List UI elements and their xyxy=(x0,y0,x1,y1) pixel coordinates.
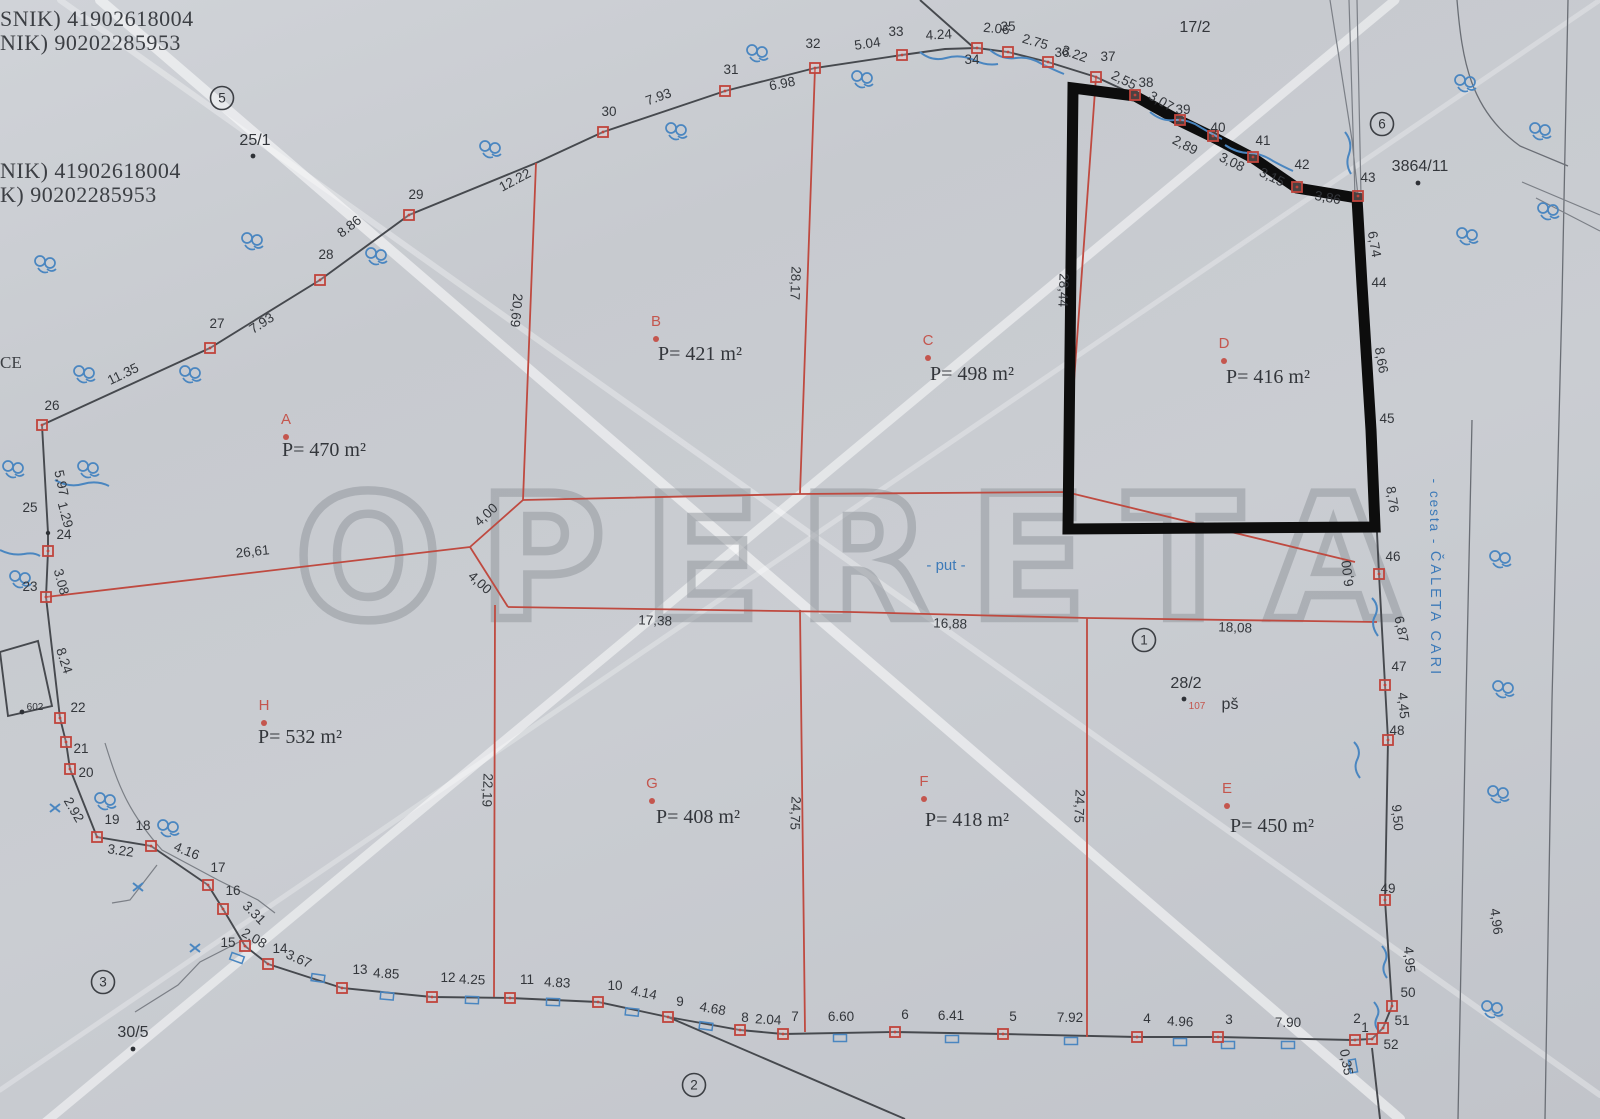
measurement-label: 3,15 xyxy=(1257,164,1287,189)
parcel-area-label: P= 421 m² xyxy=(658,343,742,365)
vegetation-icon xyxy=(74,366,95,383)
point-number-label: 48 xyxy=(1389,723,1404,738)
measurement-label: 6,74 xyxy=(1365,230,1384,259)
parcel-area-label: P= 470 m² xyxy=(282,439,366,461)
measurement-label: 4.83 xyxy=(544,974,571,990)
boundary-point-center xyxy=(1384,899,1387,902)
lot-dot xyxy=(131,1047,136,1052)
point-number-label: 44 xyxy=(1371,275,1387,290)
vegetation-icon xyxy=(747,45,768,62)
fence-icon xyxy=(834,1035,847,1042)
parcel-centroid-dot xyxy=(921,796,927,802)
boundary-point-center xyxy=(1252,156,1255,159)
measurement-label: 3,86 xyxy=(1314,188,1342,207)
measurement-label: 1.29 xyxy=(55,500,76,529)
boundary-point-center xyxy=(1212,135,1215,138)
boundary-point-center xyxy=(724,90,727,93)
measurement-label: 3.67 xyxy=(284,947,314,971)
point-number-label: 23 xyxy=(22,579,37,594)
boundary-point-center xyxy=(901,54,904,57)
vegetation-icon xyxy=(180,366,201,383)
point-number-label: 2 xyxy=(1353,1011,1361,1026)
lot-dot xyxy=(20,710,25,715)
boundary-point-center xyxy=(1296,186,1299,189)
point-number-label: 36 xyxy=(1054,45,1069,60)
boundary-point-center xyxy=(1095,76,1098,79)
parcel-centroid-dot xyxy=(1224,803,1230,809)
vegetation-icon xyxy=(366,248,387,265)
circled-number-label: 3 xyxy=(99,975,107,990)
x-mark-icon xyxy=(190,944,200,952)
lot-number-label: 3864/11 xyxy=(1392,158,1449,175)
parcel-centroid-dot xyxy=(649,798,655,804)
measurement-label: 17,38 xyxy=(638,612,672,628)
boundary-point-center xyxy=(1371,1038,1374,1041)
boundary-point-center xyxy=(45,596,48,599)
parcel-area-label: P= 418 m² xyxy=(925,809,1009,831)
boundary-point-center xyxy=(1357,195,1360,198)
boundary-point-center xyxy=(65,741,68,744)
boundary-point-center xyxy=(1354,1039,1357,1042)
fence-icon xyxy=(1065,1038,1078,1045)
measurement-label: 6.98 xyxy=(768,74,797,94)
measurement-label: 7.93 xyxy=(644,85,674,108)
point-number-label: 7 xyxy=(791,1009,799,1024)
parcel-area-label: P= 416 m² xyxy=(1226,366,1310,388)
boundary-point-center xyxy=(739,1029,742,1032)
point-number-label: 24 xyxy=(56,527,72,542)
measurement-label: 4.16 xyxy=(172,839,202,863)
point-number-label: 26 xyxy=(44,398,59,413)
vegetation-icon xyxy=(1490,551,1511,568)
measurement-label: 24,75 xyxy=(1071,789,1087,823)
boundary-point-center xyxy=(1387,739,1390,742)
point-number-label: 46 xyxy=(1385,549,1400,564)
boundary-point-center xyxy=(814,67,817,70)
point-number-label: 1 xyxy=(1361,1020,1369,1035)
vegetation-icon xyxy=(852,71,873,88)
measurement-label: 18,08 xyxy=(1218,619,1252,635)
point-number-label: 9 xyxy=(676,994,684,1009)
boundary-point-center xyxy=(597,1001,600,1004)
watermark-text: OPERETA xyxy=(295,458,1438,659)
point-number-label: 27 xyxy=(209,316,224,331)
boundary-point-center xyxy=(1382,1027,1385,1030)
measurement-label: 3.08 xyxy=(51,567,72,596)
circled-number-label: 2 xyxy=(690,1078,698,1093)
boundary-point-center xyxy=(782,1033,785,1036)
lot-number-label: 17/2 xyxy=(1179,19,1210,36)
parcel-area-label: P= 532 m² xyxy=(258,726,342,748)
boundary-point-center xyxy=(976,47,979,50)
owner-id-text: K) 90202285953 xyxy=(0,182,157,207)
owner-id-block: SNIK) 41902618004NIK) 90202285953NIK) 41… xyxy=(0,6,194,207)
measurement-label: 6,00 xyxy=(1338,560,1356,588)
point-number-label: 13 xyxy=(352,962,367,977)
house-number-label: 107 xyxy=(1189,701,1206,712)
point-number-label: 43 xyxy=(1360,170,1375,185)
lot-number-label: 25/1 xyxy=(239,132,270,149)
boundary-point-center xyxy=(1391,1005,1394,1008)
point-number-label: 17 xyxy=(210,860,225,875)
vegetation-icon xyxy=(35,256,56,273)
boundary-point-center xyxy=(267,963,270,966)
vegetation-icon xyxy=(158,820,179,837)
point-number-label: 12 xyxy=(440,970,455,985)
point-number-label: 33 xyxy=(888,24,903,39)
boundary-point-center xyxy=(667,1016,670,1019)
boundary-point-center xyxy=(1136,1036,1139,1039)
owner-id-text: SNIK) 41902618004 xyxy=(0,6,194,31)
boundary-point-center xyxy=(408,214,411,217)
street-name-label: ČALETA CARI xyxy=(1427,551,1444,677)
parcel-letter: B xyxy=(651,313,661,330)
point-number-label: 50 xyxy=(1400,985,1415,1000)
point-number-label: 4 xyxy=(1143,1011,1151,1026)
measurement-label: 4.96 xyxy=(1167,1013,1194,1029)
boundary-point-center xyxy=(222,908,225,911)
fence-icon xyxy=(946,1036,959,1043)
measurement-label: 28,17 xyxy=(787,266,803,300)
boundary-point-center xyxy=(207,884,210,887)
boundary-point-center xyxy=(47,550,50,553)
parcel-letter: C xyxy=(923,332,934,349)
boundary-point-center xyxy=(150,845,153,848)
boundary-point-center xyxy=(1378,573,1381,576)
measurement-label: 26,61 xyxy=(235,542,270,560)
measurement-label: 4,96 xyxy=(1487,907,1506,935)
measurement-label: 6.60 xyxy=(828,1009,854,1024)
survey-dot xyxy=(46,531,50,535)
fence-icon xyxy=(1282,1042,1295,1049)
boundary-point-center xyxy=(41,424,44,427)
boundary-point-center xyxy=(1134,94,1137,97)
cadastral-map-scan: OPERETA xyxy=(0,0,1600,1119)
point-number-label: 41 xyxy=(1255,133,1270,148)
point-number-label: 5 xyxy=(1009,1009,1017,1024)
measurement-label: 5.97 xyxy=(51,469,71,498)
point-number-label: 19 xyxy=(104,812,119,827)
vegetation-icon xyxy=(242,233,263,250)
point-number-label: 3 xyxy=(1225,1012,1233,1027)
road-label-put: - put - xyxy=(926,557,965,574)
measurement-label: 7.90 xyxy=(1275,1015,1301,1030)
lot-dot xyxy=(1182,697,1187,702)
measurement-label: 11.35 xyxy=(105,360,141,388)
measurement-label: 2.75 xyxy=(1021,31,1050,53)
circled-number-label: 6 xyxy=(1378,117,1386,132)
point-number-label: 6 xyxy=(901,1007,909,1022)
culture-code-label: pš xyxy=(1222,696,1239,713)
circled-number-label: 5 xyxy=(218,91,226,106)
owner-id-text: NIK) 41902618004 xyxy=(0,158,181,183)
measurement-label: 4.85 xyxy=(373,965,400,981)
parcel-letter: A xyxy=(281,411,291,428)
point-number-label: 32 xyxy=(805,36,820,51)
boundary-point-center xyxy=(96,836,99,839)
vegetation-icon xyxy=(1538,203,1559,220)
point-number-label: 16 xyxy=(225,883,240,898)
measurement-label: 4.24 xyxy=(925,26,953,42)
measurement-label: 7.92 xyxy=(1057,1010,1083,1025)
parcel-centroid-dot xyxy=(1221,358,1227,364)
point-number-label: 28 xyxy=(318,247,333,262)
parcel-letter: G xyxy=(646,775,658,792)
measurement-label: 4,95 xyxy=(1401,946,1418,973)
measurement-label: 2.92 xyxy=(61,795,87,825)
boundary-point-center xyxy=(59,717,62,720)
measurement-label: 4,45 xyxy=(1395,692,1412,719)
point-number-label: 51 xyxy=(1394,1013,1409,1028)
point-number-label: 40 xyxy=(1210,120,1225,135)
boundary-point-center xyxy=(209,347,212,350)
edge-cut-text: CE xyxy=(0,353,22,372)
point-number-label: 52 xyxy=(1383,1037,1398,1052)
measurement-label: 2.04 xyxy=(755,1011,783,1027)
vegetation-icon xyxy=(3,461,24,478)
boundary-point-center xyxy=(319,279,322,282)
point-number-label: 35 xyxy=(1000,19,1015,34)
lot-number-label: 28/2 xyxy=(1170,675,1201,692)
point-number-label: 37 xyxy=(1100,49,1115,64)
measurement-label: 3.22 xyxy=(107,841,135,860)
point-number-label: 14 xyxy=(272,941,288,956)
parcel-letter: F xyxy=(919,773,928,790)
measurement-label: 4.25 xyxy=(459,972,486,988)
boundary-point-center xyxy=(602,131,605,134)
boundary-point-center xyxy=(509,997,512,1000)
measurement-label: 28,44 xyxy=(1055,273,1071,308)
point-number-label: 22 xyxy=(70,700,85,715)
point-number-label: 11 xyxy=(520,972,534,987)
point-number-label: 30 xyxy=(601,104,616,119)
vegetation-icon xyxy=(1457,228,1478,245)
point-number-label: 47 xyxy=(1391,659,1406,674)
measurement-label: 7.93 xyxy=(246,310,276,337)
parcel-letter: D xyxy=(1219,335,1230,352)
boundary-point-center xyxy=(894,1031,897,1034)
vegetation-icon xyxy=(666,123,687,140)
measurement-label: 4.68 xyxy=(699,999,727,1018)
point-number-label: 10 xyxy=(607,978,622,993)
point-number-label: 38 xyxy=(1138,75,1153,90)
owner-id-text: NIK) 90202285953 xyxy=(0,30,181,55)
point-number-label: 18 xyxy=(135,818,150,833)
boundary-point-center xyxy=(1384,684,1387,687)
parcel-letter: H xyxy=(259,697,270,714)
measurement-label: 20,69 xyxy=(508,293,526,328)
measurement-label: 9,50 xyxy=(1389,804,1406,831)
boundary-point-center xyxy=(244,945,247,948)
point-number-label: 34 xyxy=(964,52,980,67)
boundary-point-center xyxy=(1002,1033,1005,1036)
parcel-centroid-dot xyxy=(653,336,659,342)
vegetation-icon xyxy=(1488,786,1509,803)
lot-number-label: 30/5 xyxy=(117,1024,148,1041)
measurement-label: 8.24 xyxy=(53,646,76,676)
map-canvas: OPERETA xyxy=(0,0,1600,1119)
point-number-label: 8 xyxy=(741,1010,749,1025)
vegetation-icon xyxy=(1493,681,1514,698)
boundary-point-center xyxy=(69,768,72,771)
x-mark-icon xyxy=(50,804,60,812)
point-number-label: 20 xyxy=(78,765,93,780)
point-number-label: 39 xyxy=(1175,102,1190,117)
measurement-label: 6.41 xyxy=(938,1008,964,1023)
vegetation-icon xyxy=(78,461,99,478)
boundary-point-center xyxy=(1047,61,1050,64)
parcel-centroid-dot xyxy=(925,355,931,361)
parcel-area-label: P= 498 m² xyxy=(930,363,1014,385)
vegetation-icon xyxy=(95,793,116,810)
parcel-letter: E xyxy=(1222,780,1232,797)
vegetation-icon xyxy=(480,141,501,158)
point-number-label: 49 xyxy=(1380,881,1395,896)
boundary-point-center xyxy=(341,987,344,990)
parcel-area-label: P= 408 m² xyxy=(656,806,740,828)
point-number-label: 21 xyxy=(73,741,88,756)
point-number-label: 15 xyxy=(220,935,235,950)
fence-icon xyxy=(380,992,394,1000)
measurement-label: 24,75 xyxy=(787,796,803,830)
road-label-cesta: - cesta - xyxy=(1427,479,1442,546)
lot-dot xyxy=(251,154,256,159)
point-number-label: 45 xyxy=(1379,411,1394,426)
boundary-point-center xyxy=(431,996,434,999)
measurement-label: 16,88 xyxy=(933,615,967,631)
point-number-label: 29 xyxy=(408,187,423,202)
point-number-label: 25 xyxy=(22,500,37,515)
measurement-label: 5.04 xyxy=(853,34,882,53)
parcel-area-label: P= 450 m² xyxy=(1230,815,1314,837)
boundary-point-center xyxy=(1217,1036,1220,1039)
measurement-label: 8,66 xyxy=(1372,346,1391,374)
vegetation-icon xyxy=(1530,123,1551,140)
boundary-point-center xyxy=(1007,51,1010,54)
fence-icon xyxy=(1174,1039,1187,1046)
lot-dot xyxy=(1416,181,1421,186)
lot-number-label: 602 xyxy=(27,702,44,713)
circled-number-label: 1 xyxy=(1140,633,1148,648)
measurement-label: 4.14 xyxy=(630,983,659,1003)
measurement-label: 12.22 xyxy=(496,165,533,194)
point-number-label: 31 xyxy=(723,62,738,77)
point-number-label: 42 xyxy=(1294,157,1309,172)
boundary-point-center xyxy=(1179,119,1182,122)
measurement-label: 22,19 xyxy=(479,773,495,807)
measurement-label: 2,89 xyxy=(1170,132,1200,158)
